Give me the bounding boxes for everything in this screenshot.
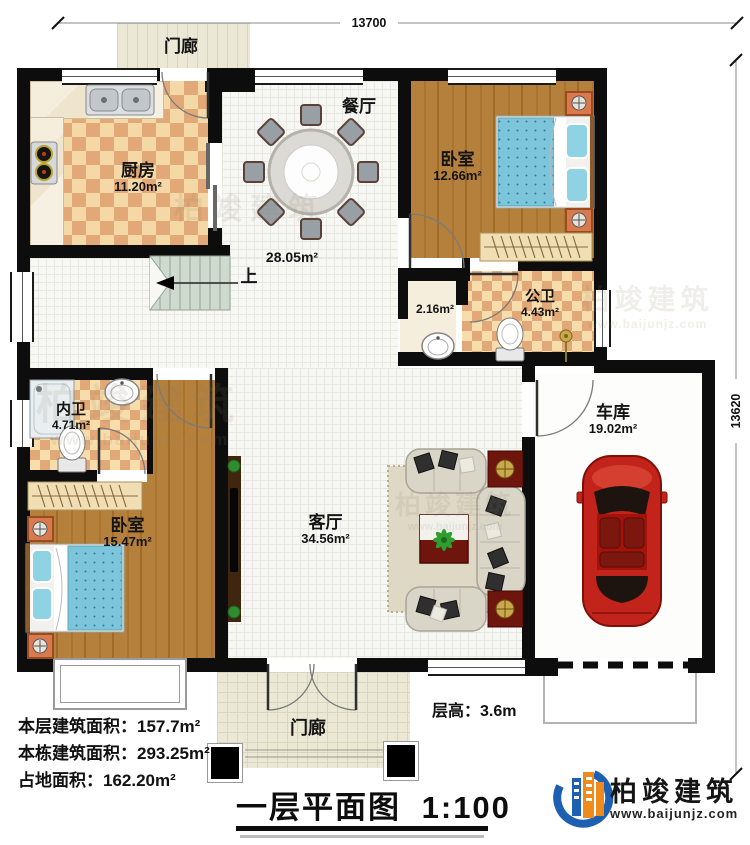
room-area-dining: 28.05m² [256, 250, 328, 266]
room-label-dining: 餐厅 [328, 97, 390, 116]
stat-floor-area: 本层建筑面积：157.7m² [18, 712, 200, 737]
room-label-porch-bottom: 门廊 [272, 718, 344, 738]
kitchen-sink [86, 85, 154, 115]
nightstand [28, 634, 53, 658]
porch-steps [245, 750, 383, 757]
room-label-living: 客厅 34.56m² [278, 513, 373, 547]
nightstand [28, 517, 53, 541]
wardrobe-bottom-left [28, 482, 142, 510]
toilet [496, 318, 524, 361]
nightstand [566, 209, 592, 232]
floor-plan: 柏竣建筑 柏竣建筑 www.baijunjz.com 柏竣建筑 www.baij… [0, 0, 750, 845]
room-area-vestibule: 2.16m² [403, 303, 467, 316]
sliding-door [206, 143, 217, 231]
stairs [150, 256, 238, 310]
dimension-lines [58, 23, 737, 774]
floor-height-note: 层高：3.6m [432, 697, 516, 721]
room-label-public-bath: 公卫 4.43m² [508, 289, 572, 319]
room-label-garage: 车库 19.02m² [568, 403, 658, 437]
pedestal-sink [422, 333, 454, 359]
bed-bottom-left [26, 544, 124, 632]
room-label-porch-top: 门廊 [146, 37, 216, 56]
dimension-top: 13700 [340, 16, 398, 30]
room-label-inner-bath: 内卫 4.71m² [38, 402, 104, 432]
stair-up-label: 上 [236, 267, 262, 286]
sofa-top [406, 449, 486, 493]
tv-cabinet [228, 456, 241, 622]
bathroom-sink [105, 379, 139, 405]
car [577, 456, 667, 626]
brand-logo-icon [557, 772, 609, 824]
side-table [488, 591, 523, 627]
title-underline-shadow [240, 835, 484, 838]
floor-lamp-icon [560, 330, 572, 362]
stat-land-area: 占地面积：162.20m² [18, 766, 176, 791]
title-underline [236, 826, 488, 831]
toilet [58, 426, 86, 472]
nightstand [566, 92, 592, 115]
dining-table-set [244, 105, 378, 239]
dimension-right: 13620 [729, 379, 743, 443]
room-label-bedroom-bl: 卧室 15.47m² [80, 516, 175, 550]
sofa-right [477, 486, 525, 596]
room-label-kitchen: 厨房 11.20m² [92, 161, 184, 195]
bed-top-right [496, 116, 594, 208]
side-table [488, 451, 523, 487]
stat-building-area: 本栋建筑面积：293.25m² [18, 739, 210, 764]
wardrobe-top-right [480, 233, 592, 261]
stove [31, 142, 57, 184]
plan-title: 一层平面图 1:100 [236, 782, 511, 827]
brand-site: www.baijunjz.com [610, 806, 738, 821]
coffee-table [420, 515, 468, 563]
sofa-bottom [406, 587, 486, 631]
brand-name: 柏竣建筑 [610, 770, 738, 809]
room-label-bedroom-tr: 卧室 12.66m² [410, 150, 505, 184]
